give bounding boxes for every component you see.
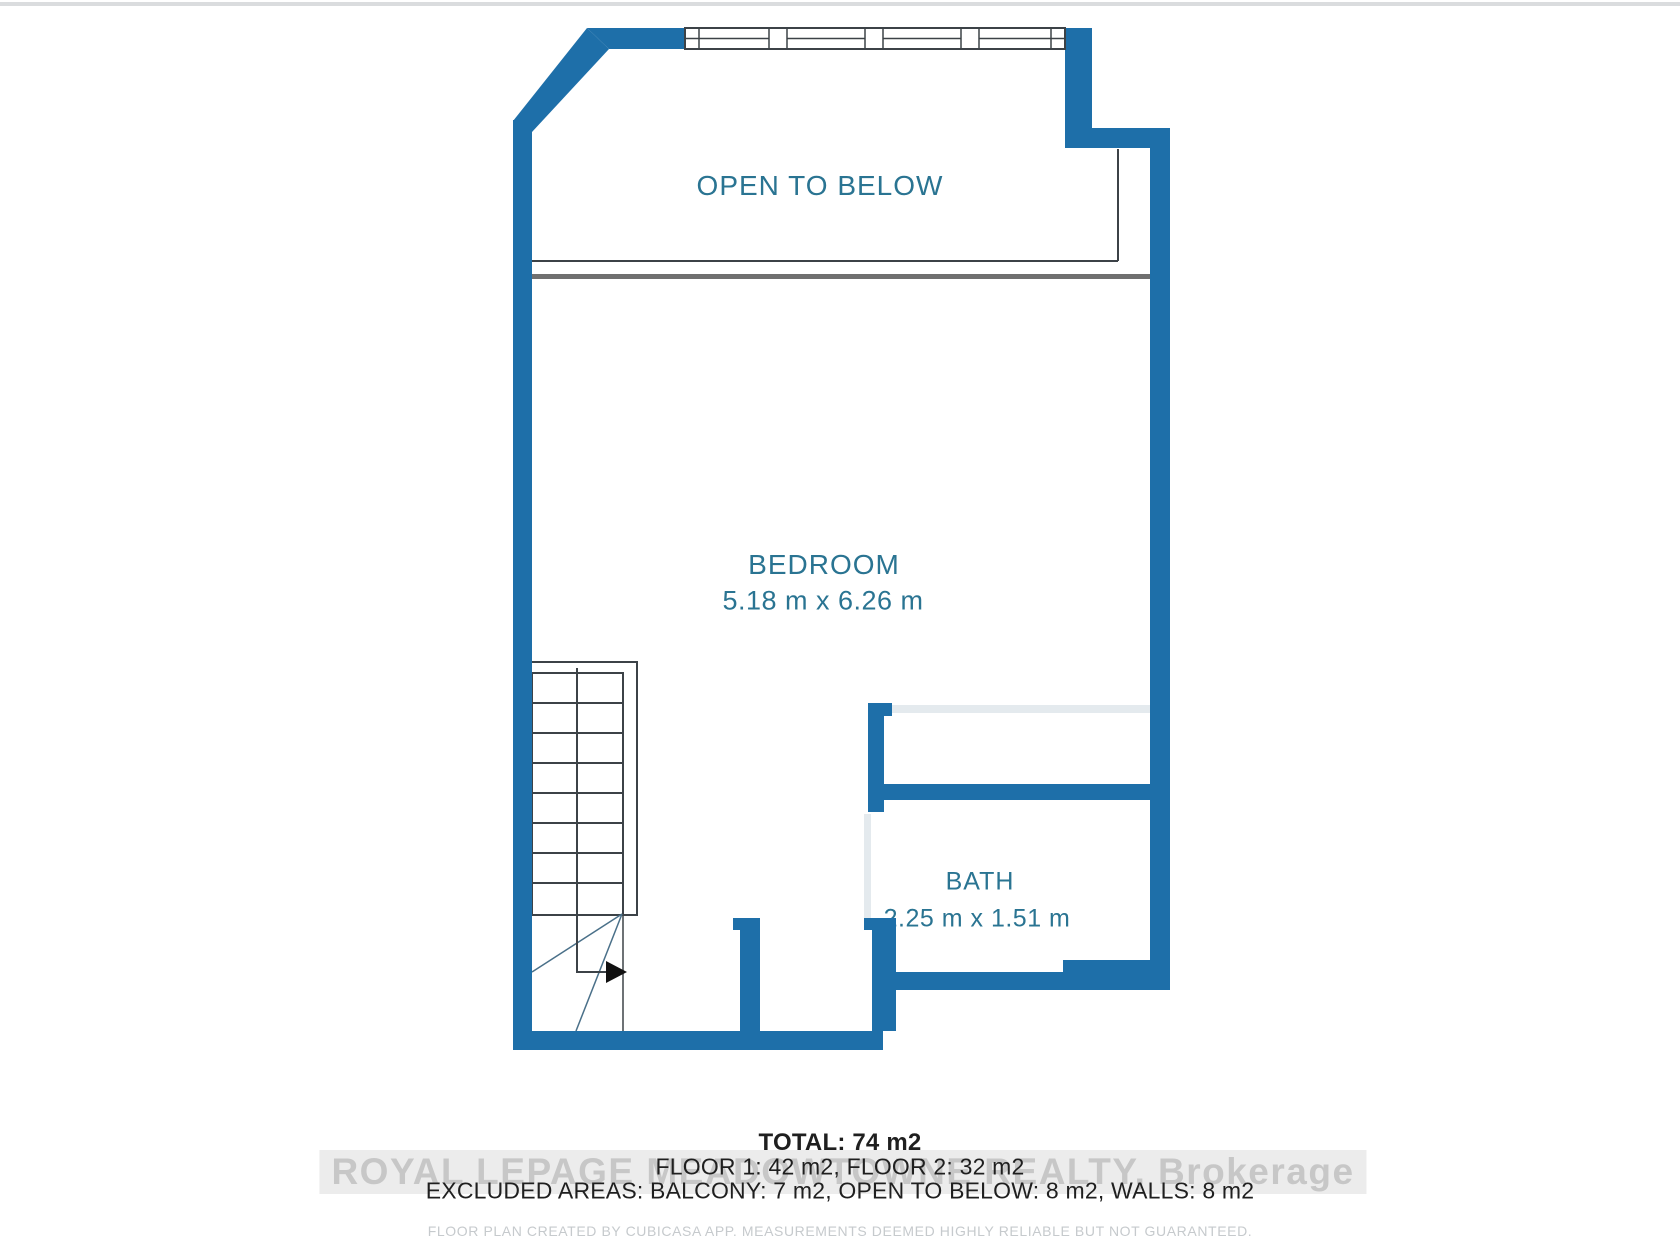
window-mullion xyxy=(961,28,979,49)
wall-left xyxy=(513,120,532,1050)
wall-closet-left-cap xyxy=(733,918,760,930)
wall-right-upper xyxy=(1065,28,1092,129)
walls xyxy=(513,28,1170,1050)
wall-bath-top xyxy=(880,784,1150,800)
wall-closet-left xyxy=(740,918,760,1031)
opening-lines xyxy=(864,705,1150,918)
railing-divider xyxy=(532,274,1152,279)
floorplan-drawing xyxy=(0,0,1680,1260)
wall-bottom xyxy=(513,1031,883,1050)
wall-diagonal xyxy=(513,28,609,132)
wall-bath-bottom-right xyxy=(1063,960,1170,990)
wall-bath-left-stub xyxy=(868,715,884,812)
stair-direction-arrow xyxy=(606,961,627,983)
open-to-below-outline xyxy=(532,149,1118,261)
wall-closet-right-cap xyxy=(864,918,892,930)
wall-right-step xyxy=(1065,128,1170,148)
window-mullion xyxy=(769,28,787,49)
stair-walkline xyxy=(577,668,627,983)
wall-bath-bottom-left xyxy=(895,972,1065,990)
window xyxy=(685,28,1065,49)
wall-bath-left-stub-cap xyxy=(868,703,892,716)
floor-areas-text: FLOOR 1: 42 m2, FLOOR 2: 32 m2 xyxy=(655,1154,1024,1181)
wall-closet-right xyxy=(872,918,896,1031)
floorplan-page: OPEN TO BELOW BEDROOM 5.18 m x 6.26 m BA… xyxy=(0,0,1680,1260)
excluded-areas-text: EXCLUDED AREAS: BALCONY: 7 m2, OPEN TO B… xyxy=(426,1178,1255,1205)
wall-right xyxy=(1150,148,1170,990)
staircase xyxy=(532,662,637,1031)
window-mullion xyxy=(865,28,883,49)
